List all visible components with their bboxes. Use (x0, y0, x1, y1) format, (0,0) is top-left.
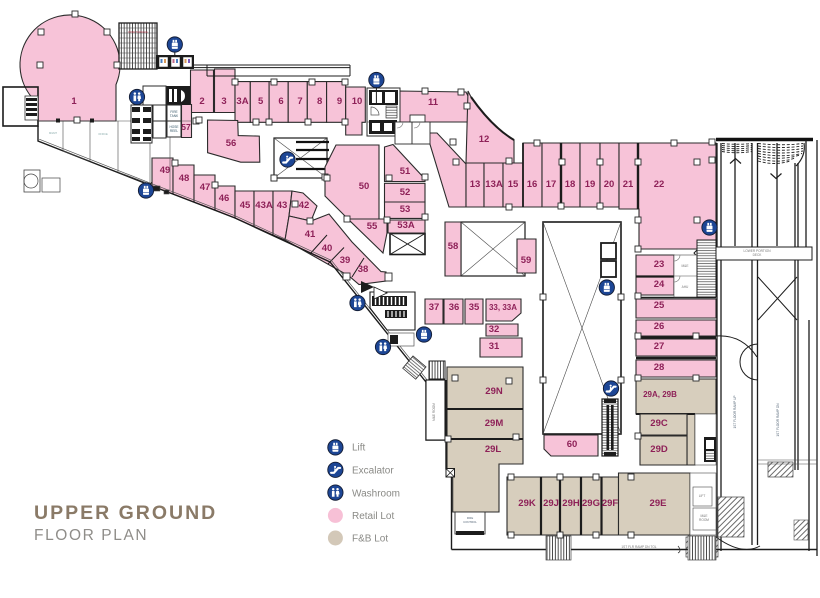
svg-text:43: 43 (277, 200, 288, 211)
svg-text:LIFT: LIFT (699, 494, 706, 498)
svg-text:29A, 29B: 29A, 29B (643, 390, 677, 399)
svg-text:42: 42 (299, 200, 310, 211)
svg-text:29F: 29F (602, 498, 619, 509)
svg-text:25: 25 (654, 300, 665, 311)
svg-text:1: 1 (71, 96, 77, 107)
svg-text:M&E ROOM: M&E ROOM (432, 403, 436, 421)
svg-text:TANK: TANK (170, 114, 179, 118)
svg-text:52: 52 (400, 187, 411, 198)
svg-text:2: 2 (199, 96, 204, 107)
svg-text:REEL: REEL (170, 129, 179, 133)
svg-text:15: 15 (508, 179, 519, 190)
svg-text:37: 37 (429, 302, 440, 313)
svg-text:45: 45 (240, 200, 251, 211)
svg-text:8: 8 (317, 96, 322, 107)
svg-text:29K: 29K (518, 498, 536, 509)
svg-text:CONTROL: CONTROL (463, 520, 477, 524)
svg-text:43A: 43A (255, 200, 273, 211)
svg-text:35: 35 (469, 302, 480, 313)
svg-text:53: 53 (400, 204, 411, 215)
svg-text:16: 16 (527, 179, 538, 190)
svg-text:5: 5 (258, 96, 264, 107)
svg-text:29L: 29L (485, 444, 502, 455)
svg-text:11: 11 (428, 97, 439, 108)
svg-text:13A: 13A (485, 179, 503, 190)
svg-text:29N: 29N (485, 386, 503, 397)
svg-text:59: 59 (521, 255, 532, 266)
svg-text:38: 38 (358, 264, 369, 275)
svg-text:1ST FLOOR RAMP UP: 1ST FLOOR RAMP UP (733, 395, 737, 428)
svg-text:1ST FLR RAMP DN TOL: 1ST FLR RAMP DN TOL (621, 545, 656, 549)
svg-text:28: 28 (654, 362, 665, 373)
svg-text:6: 6 (278, 96, 283, 107)
svg-text:51: 51 (400, 166, 411, 177)
svg-text:29J: 29J (543, 498, 559, 509)
svg-text:M&E: M&E (682, 264, 689, 268)
svg-text:19: 19 (585, 179, 596, 190)
svg-text:Excalator: Excalator (352, 466, 394, 477)
svg-text:47: 47 (200, 182, 211, 193)
svg-text:26: 26 (654, 321, 665, 332)
svg-text:21: 21 (623, 179, 634, 190)
svg-text:DECK: DECK (753, 253, 763, 257)
svg-text:MGMT: MGMT (49, 131, 57, 135)
svg-text:40: 40 (322, 243, 333, 254)
svg-text:20: 20 (604, 179, 615, 190)
svg-text:3: 3 (221, 96, 226, 107)
svg-text:32: 32 (489, 324, 500, 335)
svg-text:17: 17 (546, 179, 557, 190)
svg-text:29C: 29C (650, 418, 668, 429)
svg-text:48: 48 (179, 173, 190, 184)
svg-text:57: 57 (181, 122, 191, 132)
svg-text:53A: 53A (397, 220, 415, 231)
svg-text:29H: 29H (562, 498, 580, 509)
svg-text:27: 27 (654, 341, 665, 352)
svg-text:F&B Lot: F&B Lot (352, 534, 388, 545)
svg-text:UPPER GROUND: UPPER GROUND (34, 502, 217, 524)
svg-text:36: 36 (449, 302, 460, 313)
svg-text:29G: 29G (582, 498, 600, 509)
svg-text:39: 39 (340, 255, 351, 266)
svg-text:29E: 29E (650, 498, 667, 509)
svg-text:24: 24 (654, 279, 665, 290)
svg-text:7: 7 (297, 96, 302, 107)
svg-text:29M: 29M (485, 418, 504, 429)
svg-text:50: 50 (359, 181, 370, 192)
svg-text:Retail Lot: Retail Lot (352, 511, 394, 522)
svg-text:FLOOR PLAN: FLOOR PLAN (34, 527, 148, 544)
svg-text:12: 12 (479, 134, 490, 145)
svg-text:33, 33A: 33, 33A (489, 303, 517, 312)
svg-text:58: 58 (448, 241, 459, 252)
svg-text:3A: 3A (236, 96, 248, 107)
svg-text:41: 41 (305, 229, 316, 240)
svg-text:ROOM: ROOM (699, 518, 709, 522)
svg-text:18: 18 (565, 179, 576, 190)
svg-text:Lift: Lift (352, 443, 366, 454)
svg-text:31: 31 (489, 341, 500, 352)
svg-text:AHU: AHU (682, 285, 689, 289)
svg-text:OFFICE: OFFICE (98, 132, 108, 136)
svg-text:23: 23 (654, 259, 665, 270)
svg-text:46: 46 (219, 193, 230, 204)
svg-text:55: 55 (367, 221, 378, 232)
svg-text:13: 13 (470, 179, 481, 190)
svg-text:Washroom: Washroom (352, 489, 400, 500)
svg-text:1ST FLOOR RAMP DN: 1ST FLOOR RAMP DN (776, 403, 780, 437)
svg-text:10: 10 (352, 96, 363, 107)
svg-text:OPEN TERRACE: OPEN TERRACE (128, 31, 148, 34)
svg-text:22: 22 (654, 179, 665, 190)
svg-text:49: 49 (160, 165, 171, 176)
svg-text:60: 60 (567, 439, 578, 450)
svg-text:9: 9 (337, 96, 342, 107)
svg-text:56: 56 (226, 138, 237, 149)
svg-text:29D: 29D (650, 444, 668, 455)
